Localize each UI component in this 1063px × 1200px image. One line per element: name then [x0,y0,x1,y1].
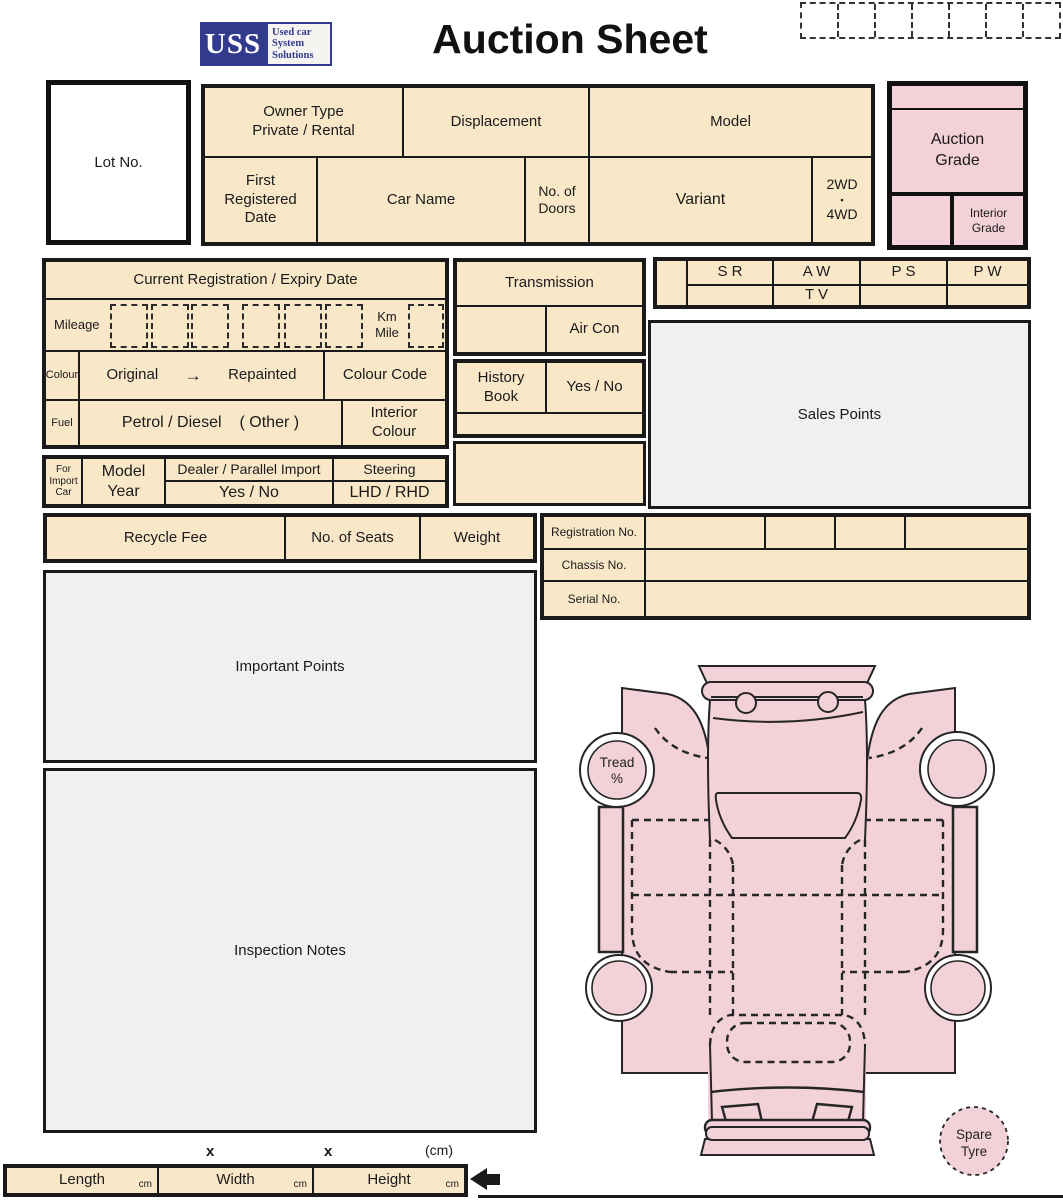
interior-grade-cell[interactable]: Interior Grade [954,196,1023,245]
mileage-label: Mileage [54,317,100,333]
mileage-digit-box[interactable] [325,304,363,348]
repaint-arrow-icon: → [185,365,202,386]
logo-line: Solutions [272,50,330,62]
weight-label: Weight [454,529,500,548]
current-registration-cell[interactable]: Current Registration / Expiry Date [45,261,446,299]
lhd-rhd-label: LHD / RHD [349,483,429,503]
mileage-digit-box[interactable] [191,304,229,348]
weight-cell[interactable]: Weight [420,516,534,560]
colour-code-label: Colour Code [343,366,427,385]
rear-skirt [701,1139,874,1155]
dimensions-table: Length cm Width cm Height cm [3,1164,468,1197]
serial-no-field[interactable] [645,581,1028,617]
spare-tyre-label: Spare [956,1127,992,1142]
transmission-value-cell[interactable] [456,306,546,353]
mileage-digit-box[interactable] [110,304,148,348]
tread-circle[interactable] [588,741,646,799]
wheel-rear-right [931,961,985,1015]
grade-value-cell[interactable] [892,196,954,245]
km-label: Km [377,309,397,325]
wheel-front-right [928,740,986,798]
air-con-label: Air Con [569,320,619,339]
extra-entry-box[interactable] [453,441,646,506]
mile-label: Mile [375,325,399,341]
auction-sheet-page: USS Used car System Solutions Auction Sh… [0,0,1063,1200]
mileage-digit-box[interactable] [242,304,280,348]
fuel-values-label: Petrol / Diesel [122,413,222,433]
fuel-label: Fuel [51,417,72,430]
dashed-cell[interactable] [913,4,950,37]
drive-dot-icon: ▪ [840,194,843,207]
option-aw-cell[interactable]: A W [773,260,860,285]
dashed-cell[interactable] [802,4,839,37]
km-mile-label: Km Mile [368,300,406,350]
option-blank-cell[interactable] [860,285,947,306]
option-blank-cell[interactable] [947,285,1028,306]
left-rocker-panel [599,807,623,952]
chassis-no-field[interactable] [645,549,1028,581]
dashed-cell[interactable] [839,4,876,37]
dealer-parallel-import-cell: Dealer / Parallel Import [165,458,333,481]
model-label: Model [710,113,751,132]
dashed-cell[interactable] [950,4,987,37]
fuel-other-label: ( Other ) [240,413,300,433]
owner-type-cell[interactable]: Owner Type Private / Rental [204,87,403,157]
import-yes-no-cell[interactable]: Yes / No [165,481,333,505]
auction-grade-box: Auction Grade Interior Grade [887,81,1028,250]
interior-colour-label: Colour [372,423,416,442]
sales-points-label: Sales Points [798,406,881,423]
doors-label: No. of [538,183,575,201]
length-cell[interactable]: Length cm [6,1167,158,1194]
owner-type-label: Owner Type [263,103,344,122]
history-yes-no-cell[interactable]: Yes / No [546,362,643,413]
model-cell[interactable]: Model [589,87,872,157]
serial-no-label: Serial No. [543,581,645,617]
interior-grade-text: Interior [970,206,1007,220]
for-import-text: Car [55,487,71,499]
model-year-label: Year [107,482,139,502]
mileage-digit-box[interactable] [151,304,189,348]
rear-bumper-lower [706,1127,869,1140]
pw-label: P W [973,263,1001,282]
logo-tagline: Used car System Solutions [266,22,332,66]
important-points-box[interactable]: Important Points [43,570,537,763]
recycle-fee-label: Recycle Fee [124,529,207,548]
interior-colour-cell[interactable]: Interior Colour [342,400,446,446]
for-import-text: For [56,464,71,476]
important-points-label: Important Points [235,658,344,675]
height-unit: cm [446,1179,459,1192]
auction-grade-text: Grade [935,151,979,172]
width-unit: cm [294,1179,307,1192]
sr-label: S R [717,263,742,282]
tv-label: T V [805,286,828,305]
ps-label: P S [892,263,916,282]
steering-cell: Steering [333,458,446,481]
registration-no-label: Registration No. [543,516,645,549]
grade-code-boxes[interactable] [800,2,1061,39]
aw-label: A W [803,263,831,282]
bottom-rule [478,1195,1063,1198]
page-title: Auction Sheet [370,16,770,63]
import-table: For Import Car Model Year Dealer / Paral… [42,455,449,508]
washer-circle-left [736,693,756,713]
no-of-seats-cell[interactable]: No. of Seats [285,516,420,560]
fuel-row-label: Fuel [45,400,79,446]
transmission-table: Transmission Air Con [453,258,646,356]
car-body [707,690,866,1128]
lot-no-box[interactable]: Lot No. [46,80,191,245]
chassis-no-text: Chassis No. [562,558,627,573]
dashed-cell[interactable] [876,4,913,37]
first-registered-label: Date [245,209,277,228]
doors-label: Doors [538,200,575,218]
car-name-label: Car Name [387,191,455,210]
current-registration-label: Current Registration / Expiry Date [133,271,357,290]
auction-grade-text: Auction [931,130,984,151]
option-blank-cell[interactable] [687,285,773,306]
uss-logo: USS Used car System Solutions [200,22,332,66]
history-book-label: Book [484,388,518,407]
inspection-notes-box[interactable]: Inspection Notes [43,768,537,1133]
options-table: S R A W P S P W T V [653,257,1031,309]
fuel-type-cell[interactable]: Petrol / Diesel ( Other ) [79,400,342,446]
colour-original-label: Original [106,366,158,385]
tread-label: Tread [600,755,635,770]
multiply-sign: x [324,1143,332,1160]
drive-4wd-label: 4WD [826,206,857,224]
dashed-cell[interactable] [987,4,1024,37]
sales-points-box[interactable]: Sales Points [648,320,1031,509]
first-registered-label: First [246,172,275,191]
option-ps-cell[interactable]: P S [860,260,947,285]
auction-grade-label[interactable]: Auction Grade [892,110,1023,196]
history-book-table: History Book Yes / No [453,359,646,438]
vehicle-info-table: Owner Type Private / Rental Displacement… [201,84,875,246]
colour-repainted-label: Repainted [228,366,296,385]
mileage-row: Mileage Km Mile [45,299,446,351]
colour-row-label: Colour [45,351,79,400]
inspection-notes-label: Inspection Notes [234,942,346,959]
displacement-cell[interactable]: Displacement [403,87,589,157]
left-arrow-icon [470,1168,500,1190]
interior-grade-text: Grade [972,221,1005,235]
colour-label: Colour [46,369,78,382]
wheel-rear-left [592,961,646,1015]
transmission-label: Transmission [505,274,594,293]
history-yes-no-label: Yes / No [566,378,622,397]
steering-label: Steering [363,461,415,479]
model-year-label: Model [102,462,146,482]
height-label: Height [367,1171,410,1190]
for-import-car-label: For Import Car [45,458,82,505]
logo-acronym: USS [200,22,266,66]
tread-percent-label: % [611,771,623,786]
recycle-fee-cell[interactable]: Recycle Fee [46,516,285,560]
chassis-no-label: Chassis No. [543,549,645,581]
no-of-seats-label: No. of Seats [311,529,394,548]
air-con-cell[interactable]: Air Con [546,306,643,353]
washer-circle-right [818,692,838,712]
logo-line: System [272,38,330,50]
length-label: Length [59,1171,105,1190]
mileage-unit-box[interactable] [408,304,444,348]
registration-no-text: Registration No. [551,525,637,540]
lhd-rhd-cell[interactable]: LHD / RHD [333,481,446,505]
serial-no-text: Serial No. [568,592,621,607]
options-mark-cell[interactable] [656,260,687,306]
registration-no-field[interactable] [835,516,905,549]
dashed-cell[interactable] [1024,4,1059,37]
history-book-cell: History Book [456,362,546,413]
owner-type-values: Private / Rental [252,122,355,141]
cm-unit-note: (cm) [425,1142,453,1158]
history-book-label: History [478,369,525,388]
car-damage-diagram[interactable]: Tread % Spare Tyre [560,650,1063,1200]
drive-type-cell[interactable]: 2WD ▪ 4WD [812,157,872,243]
transmission-cell[interactable]: Transmission [456,261,643,306]
car-name-cell[interactable]: Car Name [317,157,525,243]
displacement-label: Displacement [451,113,542,132]
colour-code-cell[interactable]: Colour Code [324,351,446,400]
registration-no-field[interactable] [645,516,765,549]
drive-2wd-label: 2WD [826,176,857,194]
option-pw-cell[interactable]: P W [947,260,1028,285]
registration-table: Current Registration / Expiry Date Milea… [42,258,449,449]
spare-tyre-label2: Tyre [961,1144,987,1159]
model-year-cell[interactable]: Model Year [82,458,165,505]
first-registered-label: Registered [224,191,297,210]
width-cell[interactable]: Width cm [158,1167,313,1194]
first-registered-date-cell[interactable]: First Registered Date [204,157,317,243]
interior-colour-label: Interior [371,404,418,423]
registration-no-field[interactable] [905,516,1028,549]
import-yes-no-label: Yes / No [219,483,279,503]
option-sr-cell[interactable]: S R [687,260,773,285]
height-cell[interactable]: Height cm [313,1167,465,1194]
right-rocker-panel [953,807,977,952]
length-unit: cm [139,1179,152,1192]
width-label: Width [216,1171,254,1190]
registration-no-field[interactable] [765,516,835,549]
option-tv-cell[interactable]: T V [773,285,860,306]
history-note-strip[interactable] [456,413,643,435]
logo-line: Used car [272,27,330,39]
grade-top-strip[interactable] [892,86,1023,110]
identifiers-table: Registration No. Chassis No. Serial No. [540,513,1031,620]
mileage-digit-box[interactable] [284,304,322,348]
multiply-sign: x [206,1143,214,1160]
colour-value-cell[interactable]: Original → Repainted [79,351,324,400]
recycle-table: Recycle Fee No. of Seats Weight [43,513,537,563]
lot-no-label: Lot No. [94,154,142,171]
variant-label: Variant [676,190,726,210]
for-import-text: Import [49,476,77,488]
dealer-import-label: Dealer / Parallel Import [177,461,320,479]
variant-cell[interactable]: Variant [589,157,812,243]
no-of-doors-cell[interactable]: No. of Doors [525,157,589,243]
